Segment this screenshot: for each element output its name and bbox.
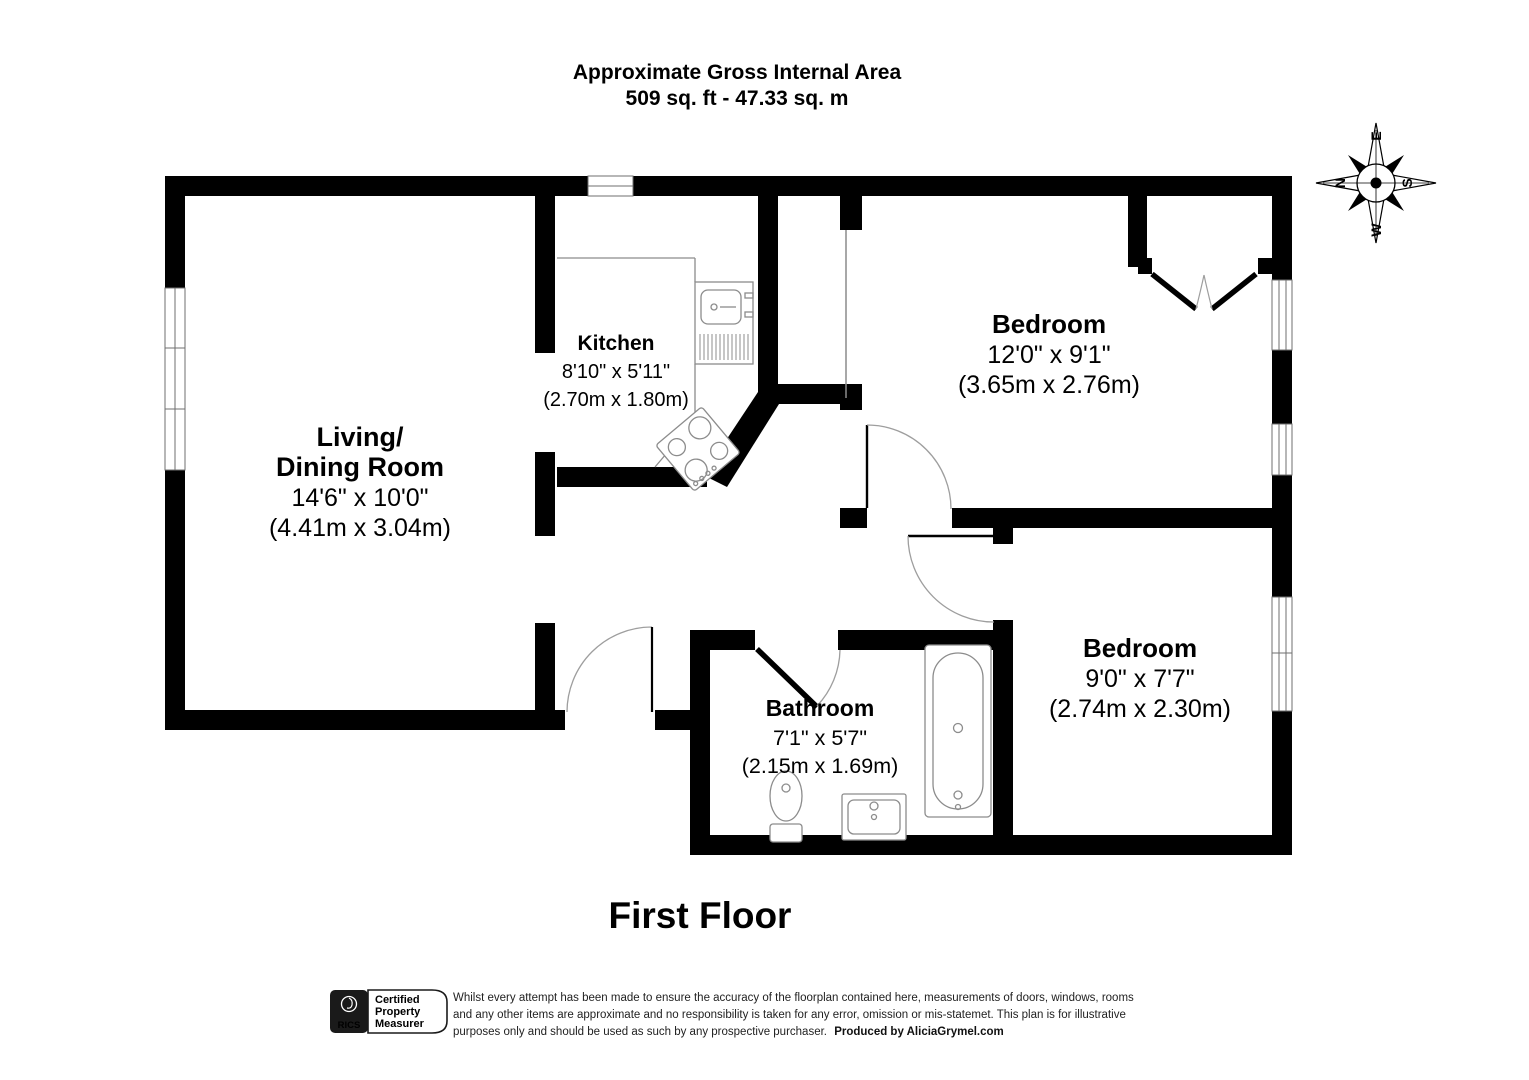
wall-right-2 (1272, 350, 1292, 424)
label-bathroom: Bathroom 7'1" x 5'7" (2.15m x 1.69m) (742, 695, 899, 778)
disclaimer-line1: Whilst every attempt has been made to en… (453, 992, 1134, 1004)
label-living-dining: Living/ Dining Room 14'6" x 10'0" (4.41m… (269, 422, 451, 542)
label-bedroom1: Bedroom 12'0" x 9'1" (3.65m x 2.76m) (958, 309, 1140, 399)
window-bed1-right-upper (1272, 280, 1292, 350)
wall-top-right (633, 176, 1292, 196)
wall-right-1 (1272, 176, 1292, 280)
french-doors (1152, 274, 1256, 309)
bedroom2-size-metric: (2.74m x 2.30m) (1049, 695, 1231, 723)
window-living-left (165, 288, 185, 470)
wall-top-left (165, 176, 588, 196)
label-kitchen: Kitchen 8'10" x 5'11" (2.70m x 1.80m) (543, 332, 689, 411)
header: Approximate Gross Internal Area 509 sq. … (573, 61, 902, 110)
gross-area-title: Approximate Gross Internal Area (573, 61, 902, 84)
bedroom1-size-metric: (3.65m x 2.76m) (958, 371, 1140, 399)
wall-bed2-left (993, 620, 1013, 835)
living-room-door (567, 627, 652, 712)
wall-divider-top (535, 196, 555, 353)
bedroom2-size-imperial: 9'0" x 7'7" (1085, 665, 1194, 693)
wall-right-4 (1272, 711, 1292, 855)
bedroom1-size-imperial: 12'0" x 9'1" (987, 341, 1110, 369)
wall-bed1-bottom-right (952, 508, 1292, 528)
window-kitchen-top (588, 176, 633, 196)
compass-label-n: N (1332, 178, 1348, 188)
living-name-line1: Living/ (317, 422, 404, 452)
compass-rose-icon: N E S W (1316, 123, 1436, 243)
cpm-line3: Measurer (375, 1018, 425, 1030)
disclaimer-line2: and any other items are approximate and … (453, 1009, 1126, 1021)
kitchen-size-metric: (2.70m x 1.80m) (543, 389, 689, 411)
wall-living-bottom (165, 710, 565, 730)
floorplan-page: Approximate Gross Internal Area 509 sq. … (0, 0, 1529, 1080)
bedroom2-name: Bedroom (1083, 633, 1197, 663)
living-size-metric: (4.41m x 3.04m) (269, 514, 451, 542)
kitchen-sink (695, 282, 753, 364)
compass-label-e: E (1368, 131, 1384, 140)
wash-basin (842, 794, 906, 840)
rics-badge: RICS Certified Property Measurer (330, 990, 447, 1033)
bath-tub (925, 645, 991, 817)
compass-label-w: W (1368, 223, 1384, 237)
cpm-line2: Property (375, 1006, 421, 1018)
rics-text: RICS (338, 1020, 361, 1031)
gross-area-value: 509 sq. ft - 47.33 sq. m (626, 87, 849, 110)
wall-bathroom-top-left (690, 630, 755, 650)
produced-by: Produced by AliciaGrymel.com (834, 1026, 1004, 1038)
wall-left-upper (165, 176, 185, 288)
wall-cupboard-bottom-stub (840, 384, 862, 410)
living-name-line2: Dining Room (276, 452, 444, 482)
wall-french-nub-right (1258, 258, 1272, 274)
room-labels: Living/ Dining Room 14'6" x 10'0" (4.41m… (269, 309, 1231, 778)
floor-title: First Floor (609, 895, 792, 936)
toilet (770, 771, 802, 842)
wall-bed1-bottom-left (840, 508, 867, 528)
disclaimer-line3: purposes only and should be used as such… (453, 1026, 1004, 1038)
disclaimer: Whilst every attempt has been made to en… (453, 992, 1134, 1038)
wall-hall-nib (778, 384, 840, 404)
wall-french-stub-left (1128, 196, 1147, 267)
wall-cupboard-top-stub (840, 196, 862, 230)
label-bedroom2: Bedroom 9'0" x 7'7" (2.74m x 2.30m) (1049, 633, 1231, 723)
window-bed2-right (1272, 597, 1292, 711)
wall-bed2-left-stub (993, 528, 1013, 544)
wall-divider-bottom (535, 623, 555, 730)
wall-divider-mid (535, 452, 555, 536)
wall-bathroom-left (690, 630, 710, 855)
floor-plan-drawing: Approximate Gross Internal Area 509 sq. … (0, 0, 1529, 1080)
compass-label-s: S (1399, 178, 1415, 187)
footer: RICS Certified Property Measurer Whilst … (330, 990, 1134, 1038)
bathroom-name: Bathroom (766, 695, 875, 721)
kitchen-name: Kitchen (577, 332, 654, 355)
bathroom-size-metric: (2.15m x 1.69m) (742, 754, 899, 778)
bedroom1-name: Bedroom (992, 309, 1106, 339)
bedroom1-door (867, 425, 951, 509)
wall-french-nub-left (1138, 258, 1152, 274)
cpm-line1: Certified (375, 994, 420, 1006)
living-size-imperial: 14'6" x 10'0" (291, 484, 428, 512)
bedroom2-door (908, 536, 994, 622)
compass-center-dot (1371, 178, 1382, 189)
wall-kitchen-right (758, 196, 778, 404)
disclaimer-line3-text: purposes only and should be used as such… (453, 1026, 827, 1038)
bathroom-size-imperial: 7'1" x 5'7" (773, 726, 867, 750)
window-bed1-right-lower (1272, 424, 1292, 475)
kitchen-size-imperial: 8'10" x 5'11" (562, 361, 670, 383)
wall-left-lower (165, 470, 185, 730)
wall-right-3 (1272, 475, 1292, 597)
